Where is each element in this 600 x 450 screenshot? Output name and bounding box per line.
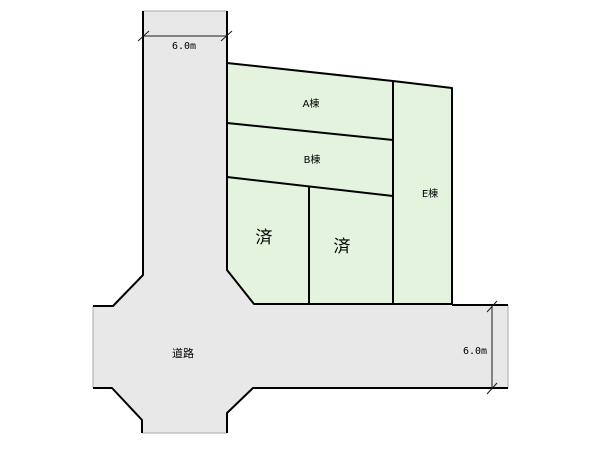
parcel-e-label: E棟 (422, 187, 438, 200)
dimension-top-label: 6.0m (172, 41, 196, 52)
road-label: 道路 (172, 346, 194, 360)
parcel-sold-left-label: 済 (256, 228, 273, 248)
road-edge-vertical-left (93, 11, 143, 306)
site-plan-canvas: 6.0m 6.0m A棟 B棟 E棟 済 済 道路 (0, 0, 600, 450)
parcel-sold-right-label: 済 (334, 237, 351, 257)
site-plan: 6.0m 6.0m A棟 B棟 E棟 済 済 道路 (0, 0, 600, 450)
parcel-block-outline (227, 63, 452, 304)
parcel-a-label: A棟 (303, 97, 320, 110)
road-edge-bottom-right-chamfer (227, 388, 508, 433)
parcel-b-label: B棟 (304, 153, 321, 166)
dimension-right-label: 6.0m (463, 346, 487, 357)
